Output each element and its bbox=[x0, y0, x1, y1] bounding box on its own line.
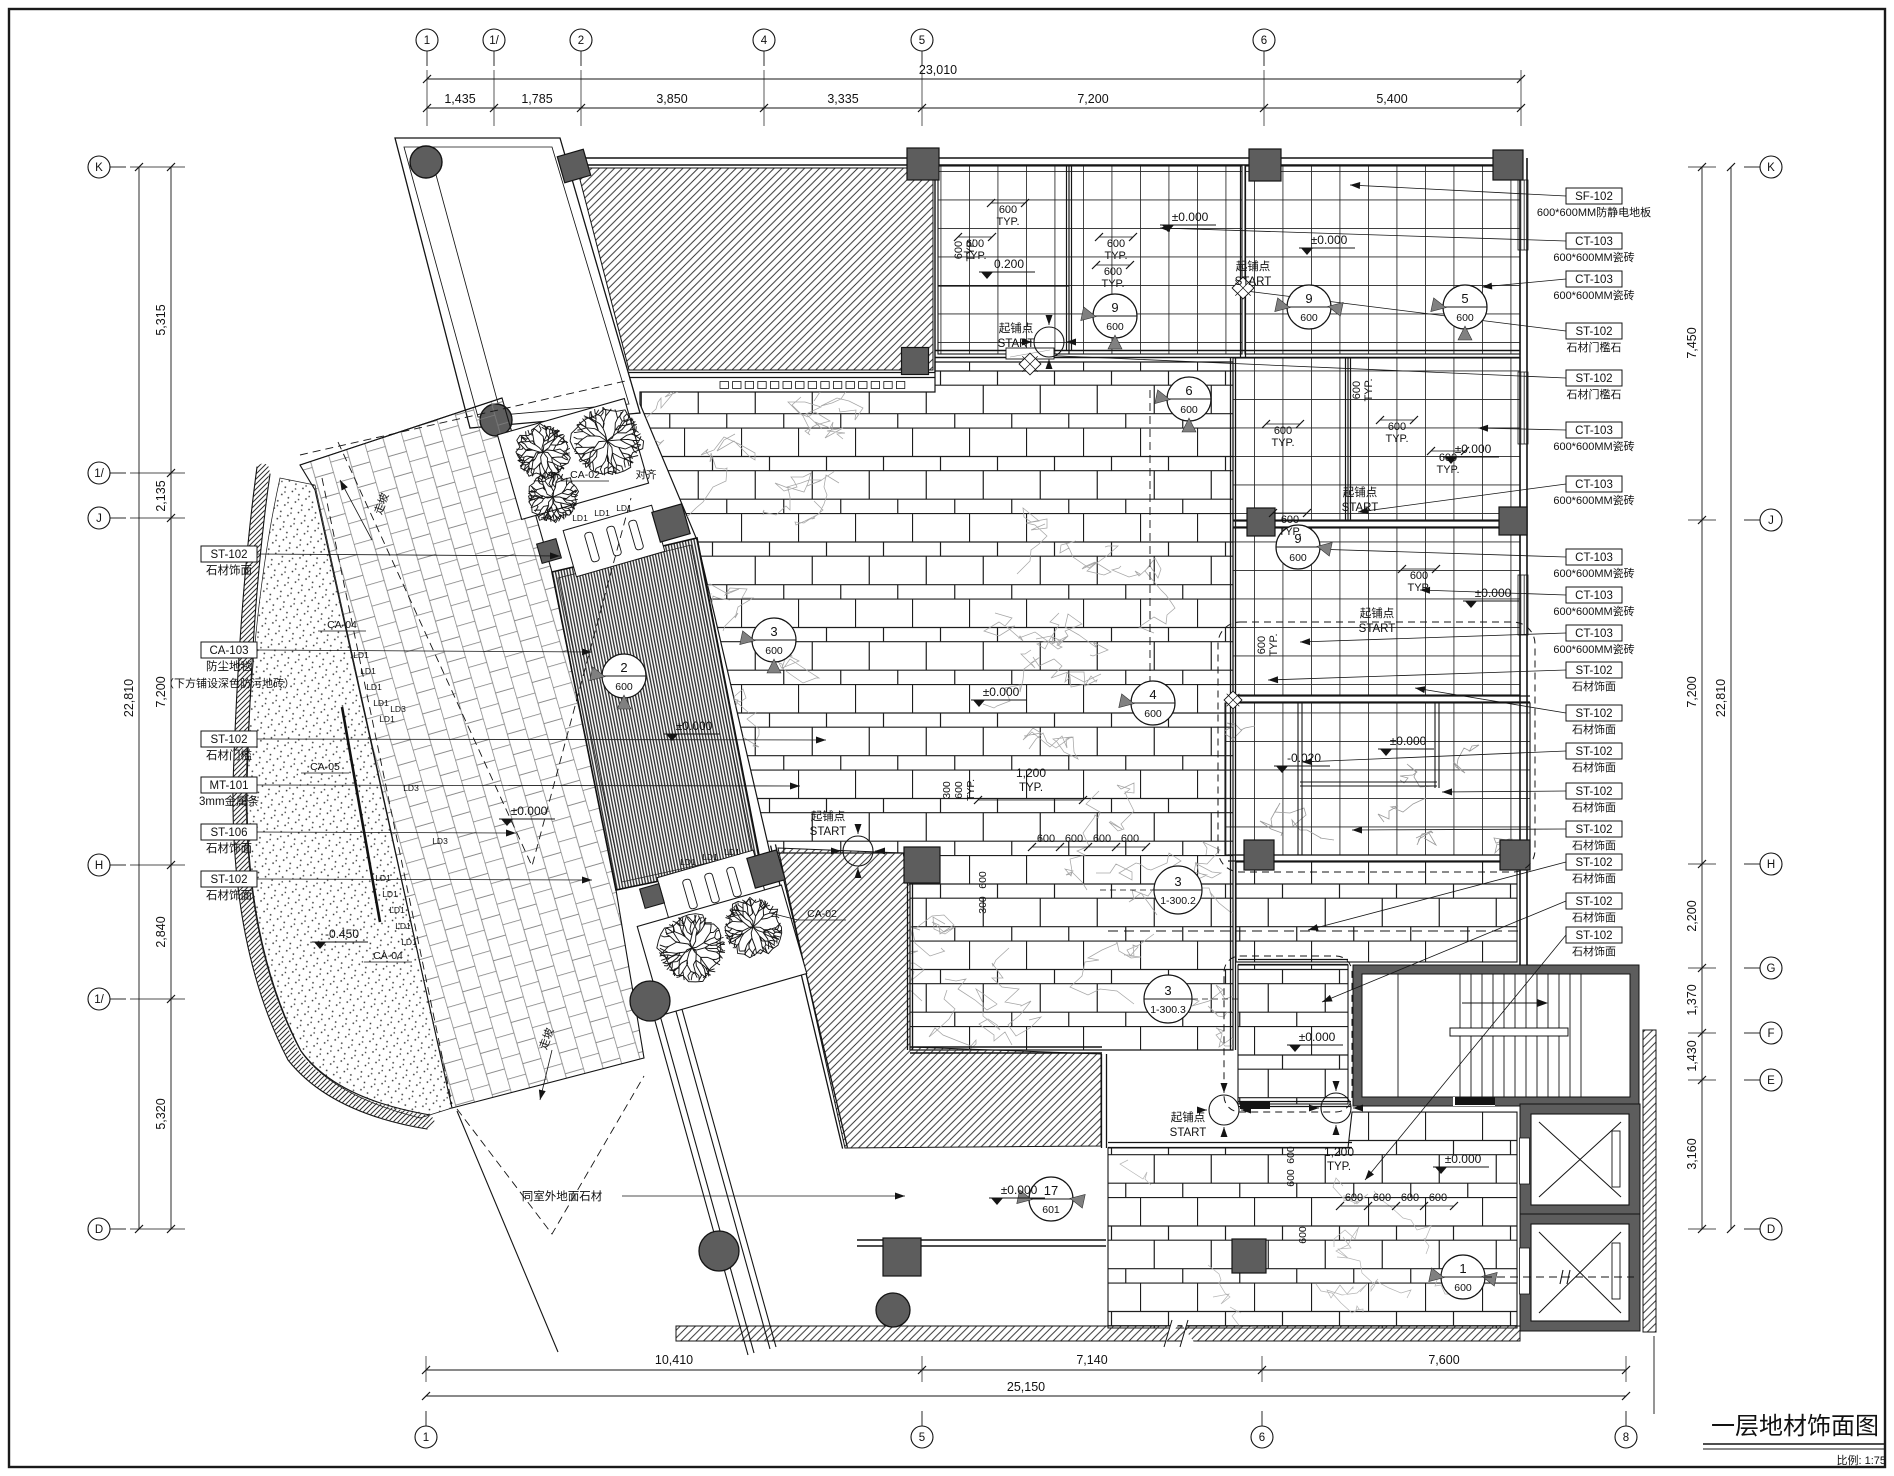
svg-text:TYP.: TYP. bbox=[996, 216, 1019, 228]
svg-text:ST-102: ST-102 bbox=[210, 549, 247, 561]
svg-text:300: 300 bbox=[977, 896, 989, 914]
svg-text:7,200: 7,200 bbox=[1077, 92, 1108, 106]
svg-text:±0.000: ±0.000 bbox=[983, 685, 1020, 699]
svg-text:CA-04: CA-04 bbox=[327, 619, 357, 631]
svg-text:600: 600 bbox=[1373, 1192, 1391, 1204]
svg-text:2: 2 bbox=[578, 35, 584, 47]
svg-text:4: 4 bbox=[1149, 687, 1156, 702]
svg-text:TYP.: TYP. bbox=[1278, 526, 1301, 538]
svg-text:25,150: 25,150 bbox=[1007, 1380, 1045, 1394]
svg-text:600: 600 bbox=[1345, 1192, 1363, 1204]
svg-text:600: 600 bbox=[1180, 404, 1198, 416]
svg-text:7,140: 7,140 bbox=[1076, 1353, 1107, 1367]
svg-text:600: 600 bbox=[1410, 570, 1428, 582]
svg-text:10,410: 10,410 bbox=[655, 1353, 693, 1367]
svg-text:5: 5 bbox=[1461, 291, 1468, 306]
svg-text:3mm金属条: 3mm金属条 bbox=[199, 794, 260, 808]
svg-text:起铺点: 起铺点 bbox=[1360, 607, 1395, 620]
svg-text:1: 1 bbox=[424, 35, 430, 47]
svg-text:（下方铺设深色防污地砖）: （下方铺设深色防污地砖） bbox=[163, 676, 295, 690]
svg-text:600*600MM瓷砖: 600*600MM瓷砖 bbox=[1553, 288, 1634, 302]
svg-text:2: 2 bbox=[620, 660, 627, 675]
svg-text:600: 600 bbox=[1106, 321, 1124, 333]
svg-text:CA-103: CA-103 bbox=[210, 645, 249, 657]
svg-text:2,840: 2,840 bbox=[154, 916, 168, 947]
svg-text:17: 17 bbox=[1044, 1183, 1058, 1198]
svg-text:LD1: LD1 bbox=[594, 508, 610, 518]
svg-text:±0.000: ±0.000 bbox=[676, 719, 713, 733]
svg-text:1,785: 1,785 bbox=[521, 92, 552, 106]
svg-text:CA-02: CA-02 bbox=[807, 908, 837, 920]
svg-text:START: START bbox=[1235, 276, 1272, 288]
svg-text:D: D bbox=[95, 1224, 103, 1236]
svg-text:石材饰面: 石材饰面 bbox=[206, 841, 252, 855]
svg-text:J: J bbox=[96, 513, 102, 525]
svg-text:1: 1 bbox=[423, 1432, 429, 1444]
svg-text:6: 6 bbox=[1259, 1432, 1265, 1444]
svg-text:±0.000: ±0.000 bbox=[1311, 233, 1348, 247]
svg-text:TYP.: TYP. bbox=[1363, 378, 1375, 401]
svg-text:9: 9 bbox=[1305, 291, 1312, 306]
svg-text:600: 600 bbox=[1285, 1169, 1297, 1187]
svg-text:3: 3 bbox=[770, 624, 777, 639]
svg-text:LD1: LD1 bbox=[724, 847, 740, 857]
svg-text:G: G bbox=[1767, 963, 1776, 975]
svg-text:起铺点: 起铺点 bbox=[1236, 260, 1271, 273]
svg-text:600*600MM瓷砖: 600*600MM瓷砖 bbox=[1553, 566, 1634, 580]
svg-text:300: 300 bbox=[941, 781, 953, 799]
svg-text:MT-101: MT-101 bbox=[210, 780, 249, 792]
svg-text:LD1: LD1 bbox=[401, 937, 417, 947]
svg-text:LD1: LD1 bbox=[616, 503, 632, 513]
svg-text:1-300.2: 1-300.2 bbox=[1160, 895, 1196, 907]
svg-text:1,430: 1,430 bbox=[1685, 1040, 1699, 1071]
svg-text:600: 600 bbox=[1107, 238, 1125, 250]
svg-text:600: 600 bbox=[1065, 833, 1083, 845]
svg-text:TYP.: TYP. bbox=[1385, 433, 1408, 445]
svg-text:ST-102: ST-102 bbox=[1575, 326, 1612, 338]
svg-text:TYP.: TYP. bbox=[1271, 437, 1294, 449]
svg-text:K: K bbox=[1767, 162, 1775, 174]
svg-text:LD1: LD1 bbox=[572, 513, 588, 523]
svg-text:START: START bbox=[1170, 1127, 1207, 1139]
svg-text:1,200: 1,200 bbox=[1324, 1145, 1354, 1159]
svg-text:5,400: 5,400 bbox=[1376, 92, 1407, 106]
svg-text:600: 600 bbox=[1388, 421, 1406, 433]
svg-text:3: 3 bbox=[1174, 874, 1181, 889]
svg-text:±0.000: ±0.000 bbox=[1172, 210, 1209, 224]
svg-text:600: 600 bbox=[1300, 312, 1318, 324]
svg-text:5,315: 5,315 bbox=[154, 304, 168, 335]
svg-text:CT-103: CT-103 bbox=[1575, 274, 1613, 286]
svg-text:2,200: 2,200 bbox=[1685, 900, 1699, 931]
svg-text:600: 600 bbox=[1274, 425, 1292, 437]
svg-text:600: 600 bbox=[977, 871, 989, 889]
svg-text:D: D bbox=[1767, 1224, 1775, 1236]
svg-text:600*600MM瓷砖: 600*600MM瓷砖 bbox=[1553, 439, 1634, 453]
svg-text:同室外地面石材: 同室外地面石材 bbox=[522, 1189, 603, 1203]
svg-text:石材饰面: 石材饰面 bbox=[1572, 871, 1616, 885]
svg-text:600: 600 bbox=[1439, 452, 1457, 464]
svg-text:±0.000: ±0.000 bbox=[1445, 1152, 1482, 1166]
svg-text:6: 6 bbox=[1185, 383, 1192, 398]
svg-text:600: 600 bbox=[1401, 1192, 1419, 1204]
svg-text:石材饰面: 石材饰面 bbox=[1572, 722, 1616, 736]
svg-text:TYP.: TYP. bbox=[1019, 782, 1043, 794]
svg-text:TYP.: TYP. bbox=[965, 238, 977, 261]
svg-text:TYP.: TYP. bbox=[965, 779, 977, 801]
svg-text:防尘地毯: 防尘地毯 bbox=[206, 659, 252, 673]
svg-text:石材门檻: 石材门檻 bbox=[206, 748, 252, 762]
svg-text:LD1: LD1 bbox=[373, 698, 389, 708]
svg-text:LD1: LD1 bbox=[366, 682, 382, 692]
svg-text:CA-02: CA-02 bbox=[570, 469, 600, 481]
svg-text:TYP.: TYP. bbox=[1327, 1161, 1351, 1173]
svg-text:石材饰面: 石材饰面 bbox=[1572, 838, 1616, 852]
svg-text:600: 600 bbox=[1104, 266, 1122, 278]
svg-text:起铺点: 起铺点 bbox=[999, 322, 1034, 335]
svg-text:600: 600 bbox=[615, 681, 633, 693]
svg-text:5,320: 5,320 bbox=[154, 1098, 168, 1129]
svg-text:ST-102: ST-102 bbox=[1575, 857, 1612, 869]
svg-text:石材门檻石: 石材门檻石 bbox=[1567, 387, 1622, 401]
svg-text:600: 600 bbox=[765, 645, 783, 657]
svg-text:ST-102: ST-102 bbox=[210, 734, 247, 746]
svg-text:600*600MM瓷砖: 600*600MM瓷砖 bbox=[1553, 493, 1634, 507]
svg-text:600*600MM瓷砖: 600*600MM瓷砖 bbox=[1553, 250, 1634, 264]
svg-text:3,850: 3,850 bbox=[656, 92, 687, 106]
svg-text:1/: 1/ bbox=[489, 35, 499, 47]
svg-text:LD1: LD1 bbox=[680, 857, 696, 867]
svg-text:LD3: LD3 bbox=[390, 704, 406, 714]
svg-text:石材饰面: 石材饰面 bbox=[1572, 800, 1616, 814]
svg-text:±0.000: ±0.000 bbox=[511, 804, 548, 818]
svg-text:起铺点: 起铺点 bbox=[1343, 486, 1378, 499]
svg-text:7,450: 7,450 bbox=[1685, 327, 1699, 358]
svg-text:K: K bbox=[95, 162, 103, 174]
svg-text:600*600MM瓷砖: 600*600MM瓷砖 bbox=[1553, 642, 1634, 656]
svg-text:3: 3 bbox=[1164, 983, 1171, 998]
svg-text:一层地材饰面图: 一层地材饰面图 bbox=[1711, 1413, 1879, 1440]
svg-text:SF-102: SF-102 bbox=[1575, 191, 1613, 203]
svg-text:1: 1 bbox=[1459, 1261, 1466, 1276]
svg-text:1,435: 1,435 bbox=[444, 92, 475, 106]
svg-text:1-300.3: 1-300.3 bbox=[1150, 1004, 1186, 1016]
svg-text:600: 600 bbox=[1289, 552, 1307, 564]
svg-text:1/: 1/ bbox=[94, 994, 104, 1006]
svg-text:CA-05: CA-05 bbox=[310, 761, 340, 773]
svg-text:TYP.: TYP. bbox=[1436, 464, 1459, 476]
svg-text:LD3: LD3 bbox=[432, 836, 448, 846]
svg-text:LD1: LD1 bbox=[379, 714, 395, 724]
svg-text:3,160: 3,160 bbox=[1685, 1138, 1699, 1169]
svg-text:石材饰面: 石材饰面 bbox=[1572, 679, 1616, 693]
svg-text:石材饰面: 石材饰面 bbox=[1572, 944, 1616, 958]
svg-text:CT-103: CT-103 bbox=[1575, 236, 1613, 248]
svg-text:4: 4 bbox=[761, 35, 768, 47]
svg-text:E: E bbox=[1767, 1075, 1775, 1087]
svg-text:601: 601 bbox=[1042, 1204, 1060, 1216]
svg-text:8: 8 bbox=[1623, 1432, 1629, 1444]
svg-text:LD1: LD1 bbox=[702, 852, 718, 862]
svg-text:ST-102: ST-102 bbox=[1575, 930, 1612, 942]
svg-text:7,600: 7,600 bbox=[1428, 1353, 1459, 1367]
svg-text:3,335: 3,335 bbox=[827, 92, 858, 106]
svg-text:START: START bbox=[810, 826, 847, 838]
svg-text:LD1: LD1 bbox=[389, 905, 405, 915]
svg-text:F: F bbox=[1767, 1028, 1774, 1040]
svg-text:LD1: LD1 bbox=[395, 921, 411, 931]
svg-text:石材饰面: 石材饰面 bbox=[206, 888, 252, 902]
svg-text:比例: 1:75: 比例: 1:75 bbox=[1836, 1453, 1886, 1467]
svg-text:TYP.: TYP. bbox=[1101, 278, 1124, 290]
svg-text:START: START bbox=[998, 338, 1035, 350]
svg-text:ST-102: ST-102 bbox=[1575, 824, 1612, 836]
svg-text:600*600MM瓷砖: 600*600MM瓷砖 bbox=[1553, 604, 1634, 618]
svg-text:23,010: 23,010 bbox=[919, 63, 957, 77]
svg-text:1,370: 1,370 bbox=[1685, 984, 1699, 1015]
svg-text:ST-102: ST-102 bbox=[1575, 786, 1612, 798]
svg-text:2,135: 2,135 bbox=[154, 480, 168, 511]
svg-text:±0.000: ±0.000 bbox=[1475, 586, 1512, 600]
svg-text:ST-102: ST-102 bbox=[210, 874, 247, 886]
svg-text:TYP.: TYP. bbox=[1104, 250, 1127, 262]
svg-text:±0.000: ±0.000 bbox=[1001, 1183, 1038, 1197]
svg-text:CT-103: CT-103 bbox=[1575, 628, 1613, 640]
svg-text:±0.000: ±0.000 bbox=[1390, 734, 1427, 748]
svg-text:START: START bbox=[1359, 623, 1396, 635]
svg-text:CT-103: CT-103 bbox=[1575, 425, 1613, 437]
svg-text:START: START bbox=[1342, 502, 1379, 514]
svg-text:1,200: 1,200 bbox=[1016, 766, 1046, 780]
svg-text:CA-04: CA-04 bbox=[373, 950, 403, 962]
svg-text:-0.450: -0.450 bbox=[325, 927, 359, 941]
svg-text:LD1: LD1 bbox=[353, 650, 369, 660]
svg-text:22,810: 22,810 bbox=[1714, 679, 1728, 717]
svg-text:CT-103: CT-103 bbox=[1575, 590, 1613, 602]
svg-text:H: H bbox=[1767, 859, 1775, 871]
svg-text:起铺点: 起铺点 bbox=[1171, 1111, 1206, 1124]
svg-text:0.200: 0.200 bbox=[994, 257, 1024, 271]
svg-text:ST-102: ST-102 bbox=[1575, 665, 1612, 677]
svg-text:LD3: LD3 bbox=[403, 783, 419, 793]
svg-text:石材饰面: 石材饰面 bbox=[1572, 760, 1616, 774]
svg-text:6: 6 bbox=[1261, 35, 1267, 47]
svg-text:起铺点: 起铺点 bbox=[811, 810, 846, 823]
svg-text:600: 600 bbox=[953, 781, 965, 799]
svg-text:TYP.: TYP. bbox=[1268, 633, 1280, 656]
svg-text:ST-102: ST-102 bbox=[1575, 896, 1612, 908]
svg-text:22,810: 22,810 bbox=[122, 679, 136, 717]
svg-text:ST-102: ST-102 bbox=[1575, 708, 1612, 720]
svg-text:ST-102: ST-102 bbox=[1575, 746, 1612, 758]
svg-text:对齐: 对齐 bbox=[636, 468, 657, 481]
svg-text:CT-103: CT-103 bbox=[1575, 552, 1613, 564]
svg-text:600: 600 bbox=[1285, 1146, 1297, 1164]
svg-text:5: 5 bbox=[919, 35, 925, 47]
svg-text:600: 600 bbox=[1144, 708, 1162, 720]
svg-text:ST-106: ST-106 bbox=[210, 827, 247, 839]
svg-text:600: 600 bbox=[999, 204, 1017, 216]
svg-text:TYP.: TYP. bbox=[1407, 582, 1430, 594]
svg-text:J: J bbox=[1768, 515, 1774, 527]
svg-text:LD1: LD1 bbox=[375, 873, 391, 883]
svg-text:600: 600 bbox=[1281, 514, 1299, 526]
svg-text:LD1: LD1 bbox=[360, 666, 376, 676]
svg-text:600: 600 bbox=[1429, 1192, 1447, 1204]
svg-text:600: 600 bbox=[1121, 833, 1139, 845]
svg-text:1/: 1/ bbox=[94, 468, 104, 480]
svg-text:9: 9 bbox=[1111, 300, 1118, 315]
svg-text:5: 5 bbox=[919, 1432, 925, 1444]
svg-text:ST-102: ST-102 bbox=[1575, 373, 1612, 385]
svg-text:600: 600 bbox=[1297, 1226, 1309, 1244]
svg-text:CT-103: CT-103 bbox=[1575, 479, 1613, 491]
svg-text:600: 600 bbox=[1256, 636, 1268, 654]
svg-text:LD1: LD1 bbox=[382, 889, 398, 899]
svg-text:-0.020: -0.020 bbox=[1287, 751, 1321, 765]
svg-text:600: 600 bbox=[1456, 312, 1474, 324]
svg-text:石材门檻石: 石材门檻石 bbox=[1567, 340, 1622, 354]
svg-text:600: 600 bbox=[953, 241, 965, 259]
svg-text:600: 600 bbox=[1351, 381, 1363, 399]
svg-text:±0.000: ±0.000 bbox=[1455, 442, 1492, 456]
svg-text:600*600MM防静电地板: 600*600MM防静电地板 bbox=[1537, 205, 1651, 219]
svg-text:600: 600 bbox=[1037, 833, 1055, 845]
svg-text:石材饰面: 石材饰面 bbox=[206, 563, 252, 577]
svg-text:±0.000: ±0.000 bbox=[1299, 1030, 1336, 1044]
svg-text:600: 600 bbox=[1454, 1282, 1472, 1294]
svg-text:石材饰面: 石材饰面 bbox=[1572, 910, 1616, 924]
svg-text:H: H bbox=[95, 860, 103, 872]
svg-text:600: 600 bbox=[1093, 833, 1111, 845]
svg-text:7,200: 7,200 bbox=[1685, 676, 1699, 707]
